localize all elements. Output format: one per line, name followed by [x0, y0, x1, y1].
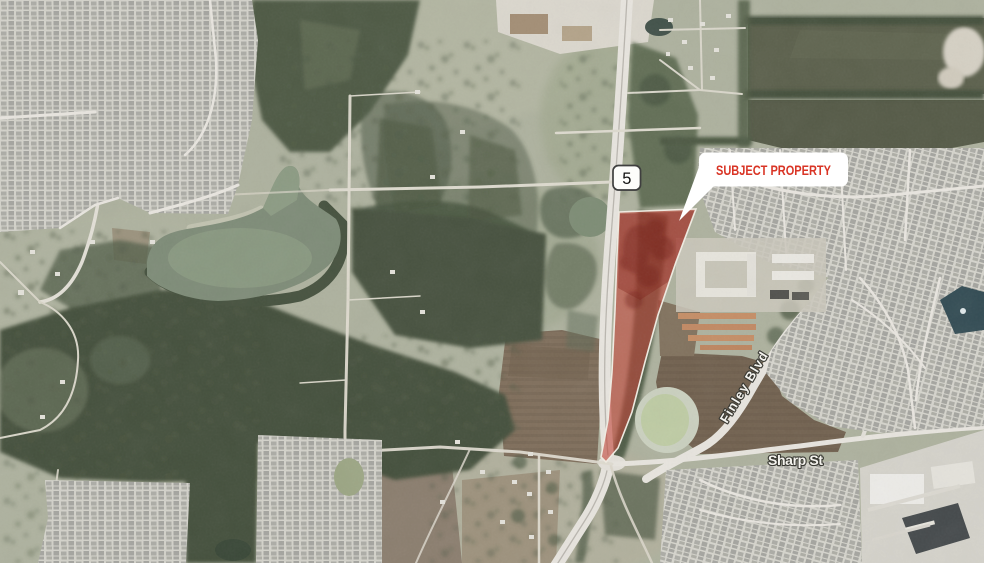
svg-text:5: 5 — [622, 170, 631, 188]
svg-text:Sharp St: Sharp St — [768, 452, 823, 468]
svg-text:SUBJECT PROPERTY: SUBJECT PROPERTY — [716, 162, 832, 178]
